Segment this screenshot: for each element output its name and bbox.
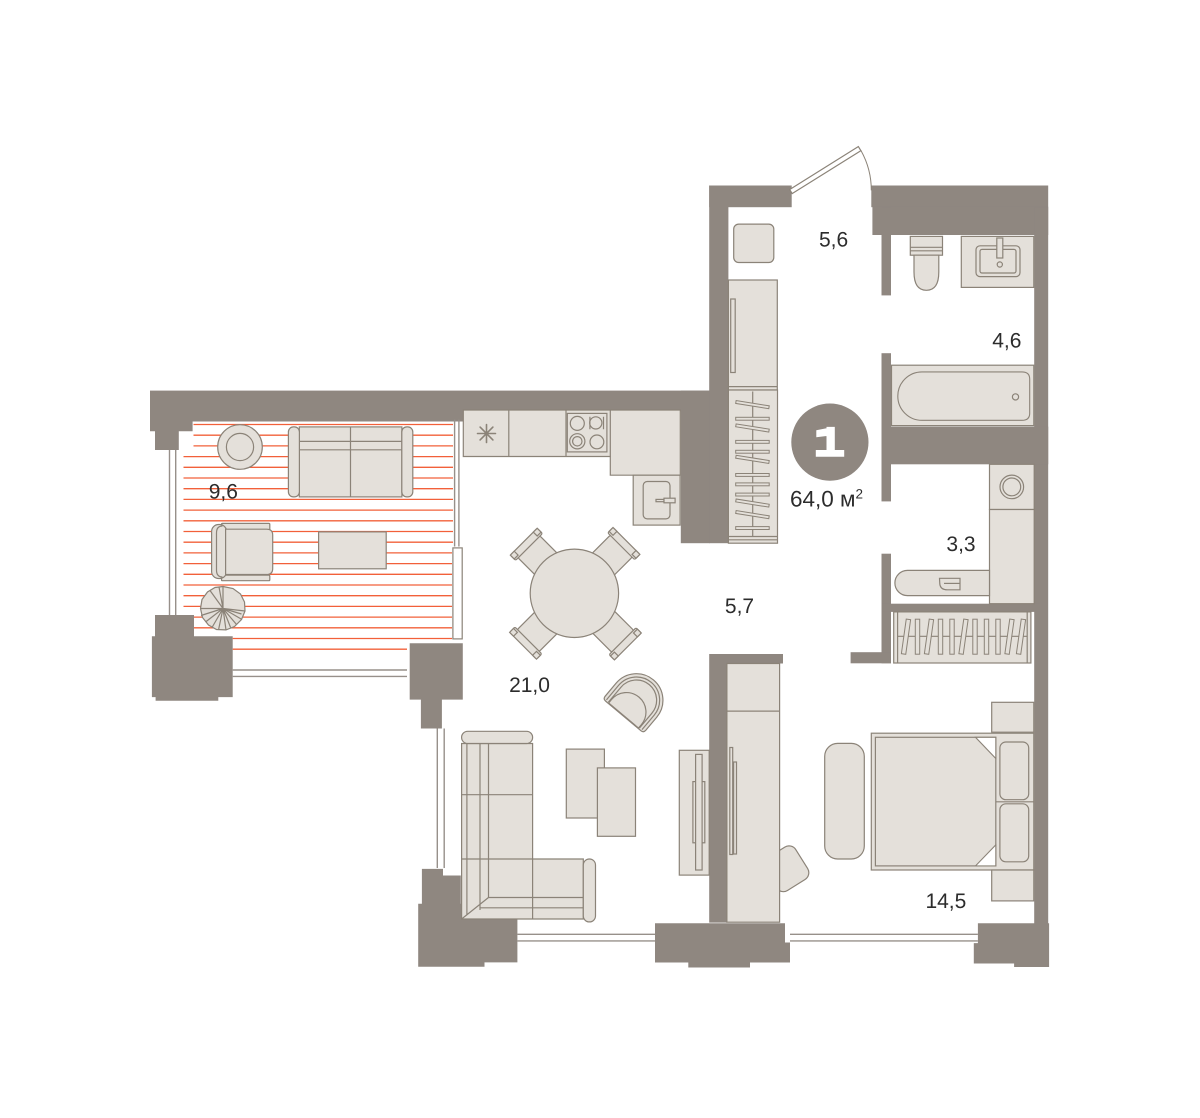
svg-text:64,0 м2: 64,0 м2 [790,487,863,512]
svg-text:4,6: 4,6 [992,330,1021,353]
svg-text:9,6: 9,6 [209,480,238,503]
svg-text:3,3: 3,3 [946,533,975,556]
svg-text:14,5: 14,5 [925,890,966,913]
svg-text:5,7: 5,7 [725,595,754,618]
svg-text:21,0: 21,0 [509,674,550,697]
svg-text:5,6: 5,6 [819,229,848,252]
